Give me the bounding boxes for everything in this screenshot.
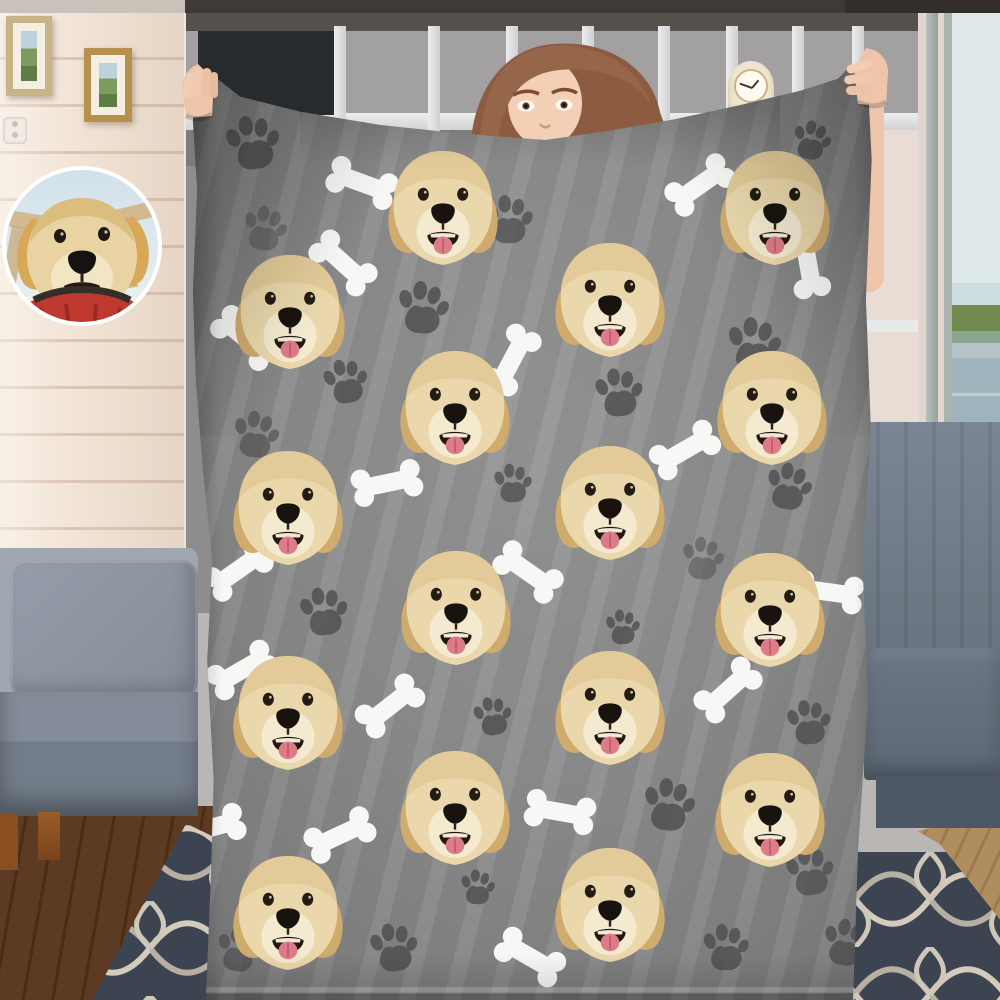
dog-face-print [384,146,502,270]
paw-print [701,922,749,973]
product-photo [0,0,1000,1000]
dog-face-print [229,651,347,775]
paw-print [365,919,420,977]
paw-print [392,277,452,340]
landscape-painting [99,63,117,107]
dog-face-print [713,346,831,470]
left-sofa-cushion [10,560,198,698]
right-sofa-cushion [864,648,1000,780]
dog-face-print [397,546,515,670]
left-hand [168,58,232,126]
paw-print [783,697,832,749]
bone-print [349,668,430,744]
paw-print [604,608,640,646]
paw-print [638,774,698,837]
dog-face-print [551,441,669,565]
dog-face-print [229,446,347,570]
dog-face-print [711,548,829,672]
sofa-leg [0,814,18,870]
dog-face-print [396,746,514,870]
picture-frame-small [6,16,52,96]
dog-face-print [551,238,669,362]
book-stack [346,44,422,114]
dog-face-print [551,843,669,967]
dog-face-print [229,851,347,975]
pet-photo-inset [0,160,170,334]
paw-print [295,583,350,641]
wall-outlet [3,117,27,144]
dog-face-print [231,250,349,374]
picture-frame-large [84,48,132,122]
bone-print [521,786,599,838]
right-hand [832,44,896,114]
left-sofa-seat [0,692,198,816]
dog-face-print [551,646,669,770]
landscape-painting [21,31,37,81]
dog-face-print [711,748,829,872]
photo-blanket [180,56,896,1000]
paw-print [469,692,515,740]
sofa-leg [38,812,60,860]
right-sofa-backrest [852,422,1000,667]
paw-print [458,867,497,908]
dog-face-print [396,346,514,470]
paw-print [591,365,645,422]
right-sofa-base [876,776,1000,828]
paw-print [237,201,291,257]
dog-face-print [716,146,834,270]
